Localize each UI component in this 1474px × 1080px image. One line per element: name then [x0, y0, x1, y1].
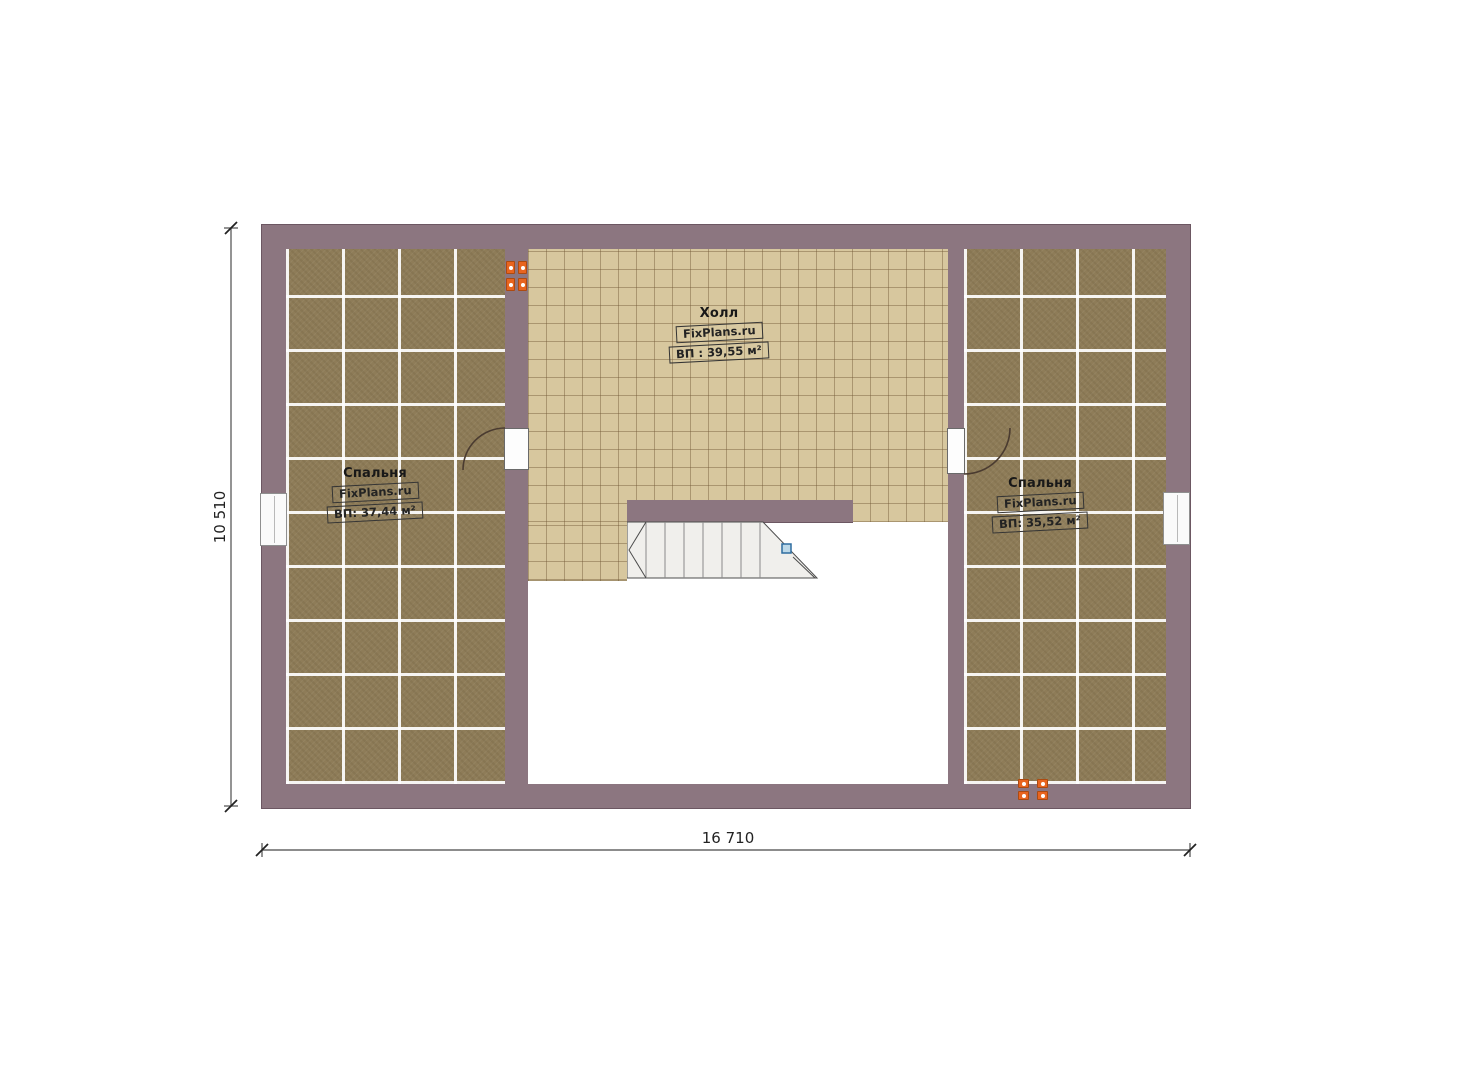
- dimension-label-width: 16 710: [676, 829, 780, 847]
- door-swing-arc-left: [463, 428, 505, 470]
- floorplan-sheet: Спальня FixPlans.ru ВП: 37,44 м² Холл Fi…: [0, 0, 1474, 1080]
- dimension-label-height: 10 510: [211, 485, 229, 549]
- door-swing-arc-right: [964, 428, 1010, 474]
